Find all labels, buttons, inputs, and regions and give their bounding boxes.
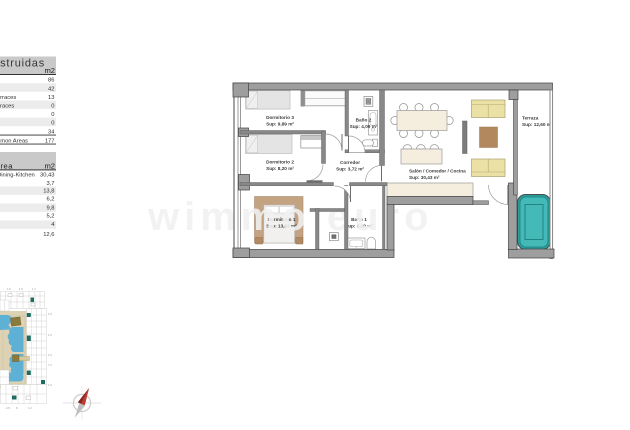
- svg-text:Salón / Comedor / Cocina: Salón / Comedor / Cocina: [409, 169, 466, 174]
- svg-text:Corredor: Corredor: [340, 160, 360, 165]
- svg-text:1.6: 1.6: [48, 353, 52, 357]
- svg-text:1.6: 1.6: [19, 287, 23, 291]
- svg-text:7.4: 7.4: [48, 363, 52, 367]
- svg-text:Sup: 3,72 m²: Sup: 3,72 m²: [336, 167, 364, 172]
- svg-text:0: 0: [51, 112, 54, 118]
- svg-text:Sup: 4,09 m²: Sup: 4,09 m²: [350, 124, 378, 129]
- svg-text:Sup: 8,20 m²: Sup: 8,20 m²: [266, 166, 294, 171]
- svg-text:1.6: 1.6: [48, 312, 52, 316]
- svg-text:2.6: 2.6: [6, 406, 10, 410]
- svg-text:m2: m2: [44, 66, 55, 75]
- svg-text:5,2: 5,2: [46, 214, 54, 220]
- svg-text:1.2: 1.2: [28, 406, 32, 410]
- svg-text:42: 42: [48, 86, 54, 92]
- svg-text:Terraza: Terraza: [522, 116, 539, 121]
- svg-text:13,8: 13,8: [43, 188, 54, 194]
- svg-text:Sup: 12,60 m²: Sup: 12,60 m²: [522, 122, 553, 127]
- svg-text:1.6: 1.6: [48, 333, 52, 337]
- svg-text:Baño 2: Baño 2: [356, 118, 372, 123]
- svg-text:3,7: 3,7: [46, 181, 54, 187]
- svg-text:Sup: 9,89 m²: Sup: 9,89 m²: [266, 122, 294, 127]
- svg-text:1.6: 1.6: [48, 383, 52, 387]
- svg-text:1.5: 1.5: [7, 287, 11, 291]
- svg-text:30,43: 30,43: [40, 173, 55, 179]
- svg-text:86: 86: [48, 78, 54, 84]
- svg-text:6,2: 6,2: [46, 197, 54, 203]
- svg-text:0: 0: [51, 121, 54, 127]
- svg-text:Sup: 30,43 m²: Sup: 30,43 m²: [409, 175, 440, 180]
- svg-text:9,8: 9,8: [46, 206, 54, 212]
- svg-text:Dormitorio 3: Dormitorio 3: [266, 115, 294, 120]
- svg-text:Useful Area: Useful Area: [0, 161, 13, 170]
- svg-text:Common Areas: Common Areas: [0, 138, 28, 144]
- svg-text:Dormitorio 2: Dormitorio 2: [266, 160, 294, 165]
- svg-text:0: 0: [51, 104, 54, 110]
- svg-text:Terraces: Terraces: [0, 95, 16, 101]
- svg-text:Terraces: Terraces: [0, 104, 14, 110]
- svg-text:1.7: 1.7: [32, 287, 36, 291]
- svg-text:177: 177: [45, 138, 55, 144]
- svg-text:34: 34: [48, 129, 55, 135]
- svg-text:12,6: 12,6: [43, 232, 54, 238]
- svg-text:Superficies Construidas: Superficies Construidas: [0, 58, 45, 70]
- svg-text:13: 13: [48, 95, 54, 101]
- svg-text:Living-Dining-Kitchen: Living-Dining-Kitchen: [0, 173, 35, 179]
- svg-text:m2: m2: [44, 161, 55, 170]
